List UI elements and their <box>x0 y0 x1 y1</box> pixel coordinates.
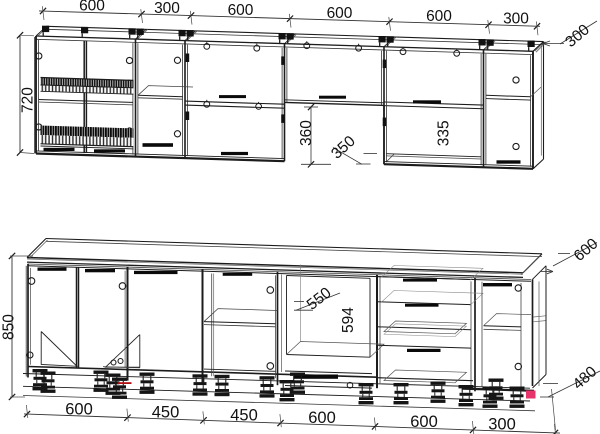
svg-text:600: 600 <box>79 0 105 15</box>
svg-text:600: 600 <box>228 2 254 19</box>
svg-text:850: 850 <box>1 314 18 340</box>
svg-text:600: 600 <box>426 8 452 25</box>
svg-text:600: 600 <box>308 409 336 427</box>
svg-text:600: 600 <box>410 413 438 431</box>
svg-text:300: 300 <box>154 0 180 17</box>
svg-text:335: 335 <box>436 120 453 146</box>
svg-text:594: 594 <box>340 307 357 333</box>
svg-text:450: 450 <box>152 404 180 422</box>
svg-text:300: 300 <box>488 416 516 434</box>
svg-text:450: 450 <box>230 406 258 424</box>
svg-text:600: 600 <box>327 5 353 22</box>
svg-text:360: 360 <box>298 120 315 146</box>
svg-text:720: 720 <box>20 87 37 113</box>
svg-text:300: 300 <box>503 11 529 28</box>
svg-text:600: 600 <box>65 401 93 419</box>
